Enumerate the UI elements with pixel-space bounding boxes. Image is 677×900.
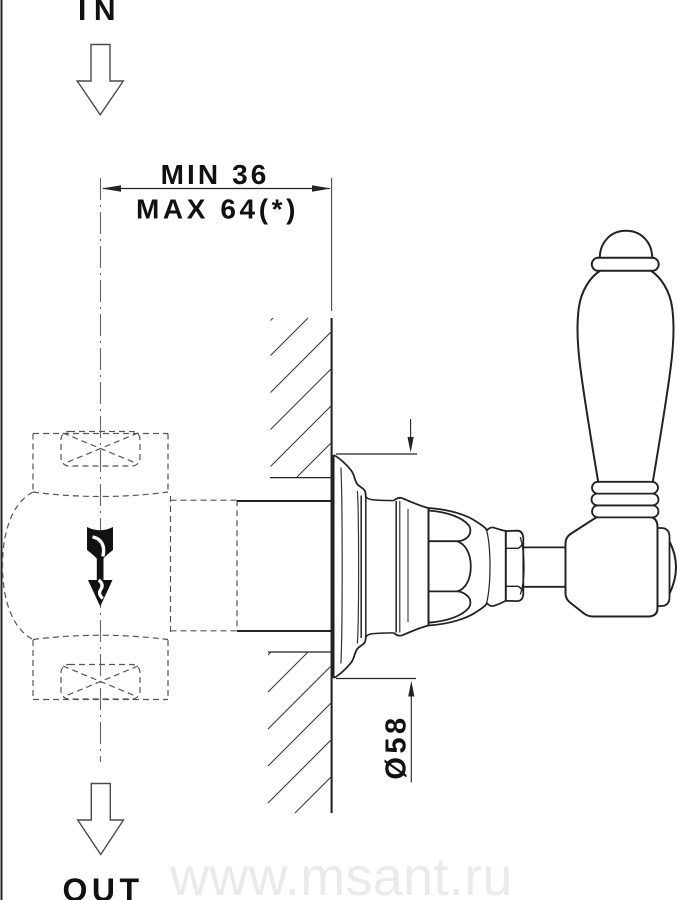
svg-text:IN: IN [78, 0, 123, 27]
svg-text:OUT: OUT [62, 872, 143, 900]
svg-text:MAX 64(*): MAX 64(*) [136, 194, 299, 225]
svg-text:Ø58: Ø58 [381, 714, 413, 779]
svg-text:www.msant.ru: www.msant.ru [169, 847, 513, 900]
svg-text:MIN 36: MIN 36 [161, 159, 270, 190]
